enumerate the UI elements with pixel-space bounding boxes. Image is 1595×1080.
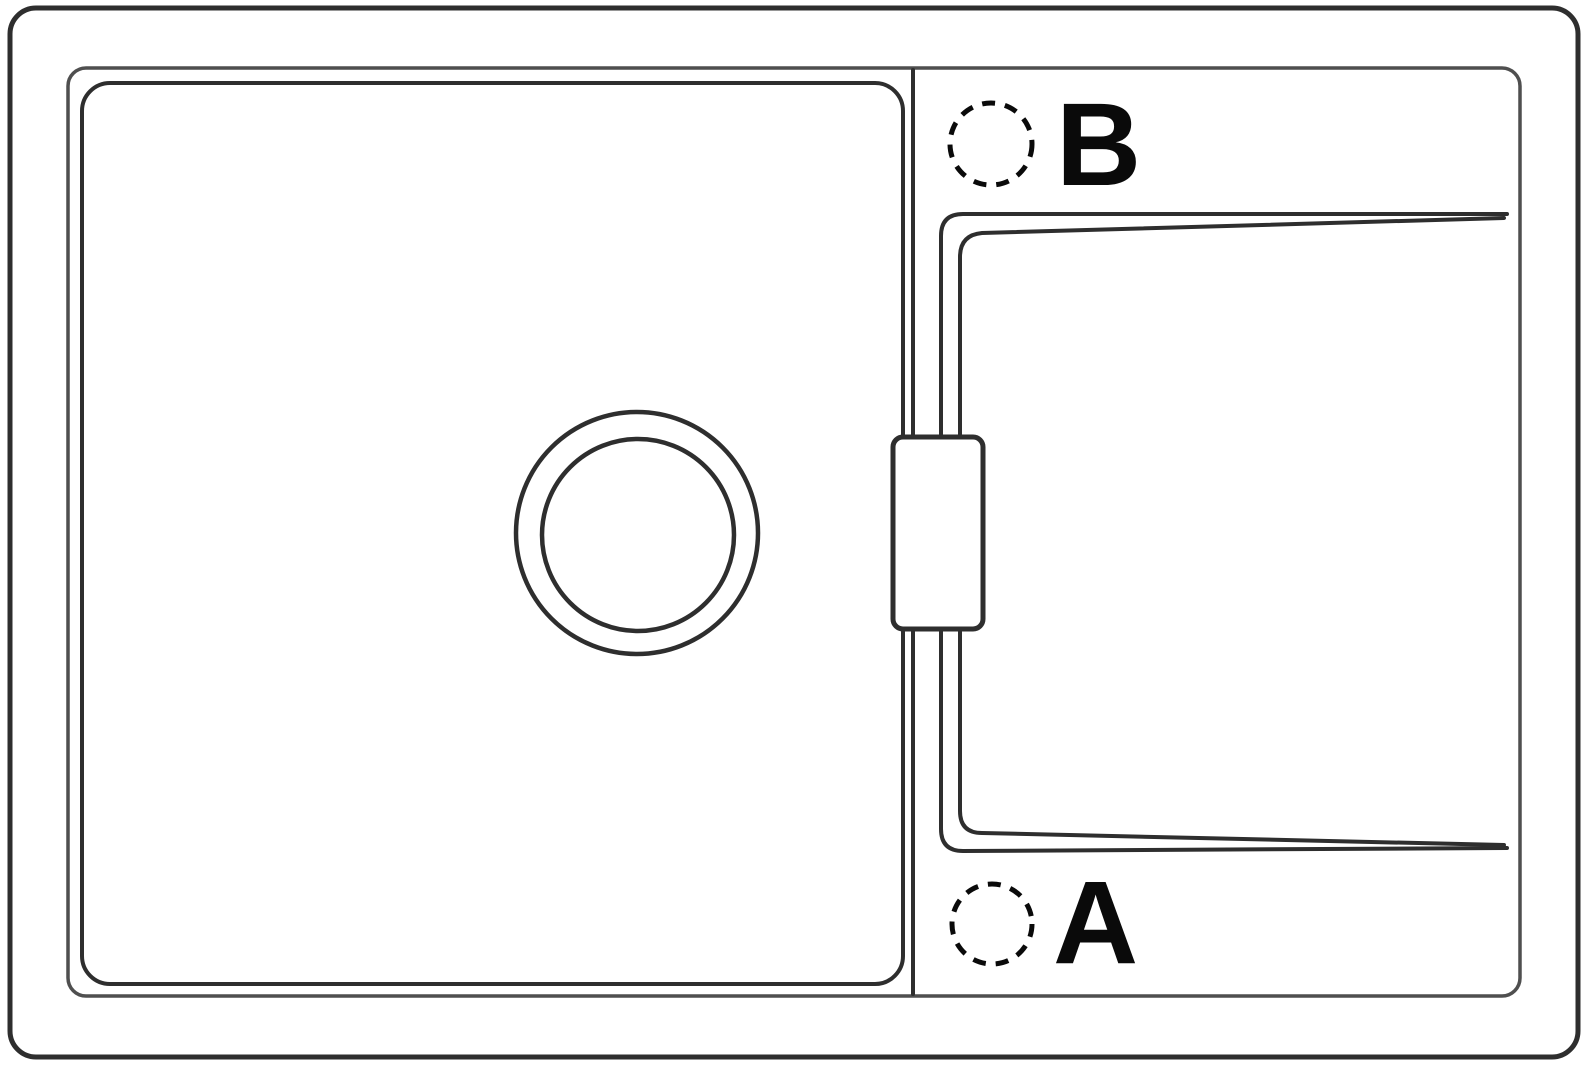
tap-hole-a-label: A bbox=[1053, 857, 1138, 989]
sink-outer-edge bbox=[10, 8, 1578, 1057]
sink-diagram: B A bbox=[0, 0, 1595, 1080]
tap-hole-b-label: B bbox=[1056, 79, 1141, 211]
overflow-bridge bbox=[893, 437, 983, 629]
